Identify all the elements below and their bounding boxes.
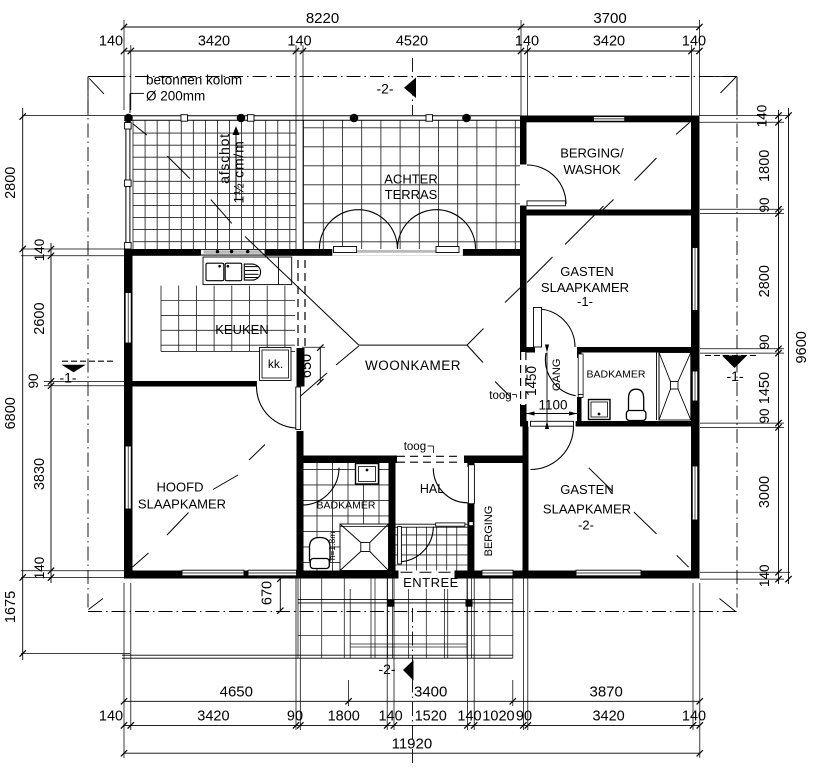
svg-text:WASHOK: WASHOK bbox=[563, 162, 621, 177]
svg-text:1675: 1675 bbox=[3, 591, 19, 623]
svg-text:BERGING: BERGING bbox=[483, 506, 495, 557]
svg-text:11920: 11920 bbox=[392, 735, 433, 752]
svg-text:ACHTER: ACHTER bbox=[384, 172, 437, 187]
svg-text:140: 140 bbox=[32, 239, 47, 262]
svg-text:1520: 1520 bbox=[415, 709, 447, 725]
svg-text:-2-: -2- bbox=[578, 518, 594, 533]
svg-text:140: 140 bbox=[457, 709, 481, 725]
svg-text:90: 90 bbox=[287, 709, 303, 725]
svg-text:140: 140 bbox=[682, 709, 706, 725]
svg-text:betonnen kolom: betonnen kolom bbox=[146, 73, 242, 88]
svg-text:BADKAMER: BADKAMER bbox=[587, 369, 646, 381]
svg-text:-1-: -1- bbox=[577, 294, 593, 309]
svg-text:90: 90 bbox=[757, 408, 772, 423]
svg-text:GANG: GANG bbox=[551, 359, 563, 391]
svg-text:670: 670 bbox=[260, 581, 276, 605]
svg-text:-1-: -1- bbox=[59, 370, 76, 386]
svg-text:3870: 3870 bbox=[590, 684, 623, 701]
svg-text:140: 140 bbox=[287, 34, 311, 50]
svg-text:toog: toog bbox=[404, 441, 426, 453]
svg-text:SLAAPKAMER: SLAAPKAMER bbox=[138, 497, 226, 512]
svg-text:4650: 4650 bbox=[220, 684, 253, 701]
svg-text:140: 140 bbox=[378, 709, 402, 725]
svg-text:1450: 1450 bbox=[757, 372, 773, 404]
svg-text:HAL: HAL bbox=[420, 482, 444, 496]
svg-text:kk.: kk. bbox=[268, 357, 283, 371]
svg-text:6800: 6800 bbox=[3, 397, 19, 429]
svg-text:140: 140 bbox=[755, 105, 770, 128]
svg-text:GASTEN: GASTEN bbox=[560, 482, 613, 497]
svg-text:3830: 3830 bbox=[32, 458, 48, 490]
svg-text:1800: 1800 bbox=[757, 150, 773, 182]
svg-text:3420: 3420 bbox=[593, 34, 625, 50]
svg-text:HOOFD: HOOFD bbox=[157, 480, 204, 495]
svg-text:90: 90 bbox=[757, 334, 772, 349]
svg-text:BERGING/: BERGING/ bbox=[560, 146, 624, 161]
svg-text:3700: 3700 bbox=[593, 10, 626, 27]
svg-text:1100: 1100 bbox=[538, 398, 567, 413]
svg-text:SLAAPKAMER: SLAAPKAMER bbox=[541, 280, 629, 295]
svg-text:140: 140 bbox=[682, 34, 706, 50]
svg-text:KEUKEN: KEUKEN bbox=[215, 322, 268, 337]
svg-text:1450: 1450 bbox=[524, 366, 539, 396]
svg-text:SLAAPKAMER: SLAAPKAMER bbox=[543, 502, 631, 517]
svg-text:9600: 9600 bbox=[794, 331, 810, 363]
svg-text:Ø 200mm: Ø 200mm bbox=[146, 89, 205, 104]
svg-text:GASTEN: GASTEN bbox=[560, 264, 613, 279]
svg-text:1020: 1020 bbox=[482, 709, 514, 725]
svg-text:140: 140 bbox=[515, 34, 539, 50]
svg-text:140: 140 bbox=[757, 564, 772, 587]
svg-text:1800: 1800 bbox=[328, 709, 360, 725]
svg-text:toog: toog bbox=[489, 390, 511, 402]
svg-text:140: 140 bbox=[99, 709, 123, 725]
svg-text:h=1.8m: h=1.8m bbox=[327, 532, 337, 561]
svg-text:140: 140 bbox=[99, 34, 123, 50]
svg-text:ENTREE: ENTREE bbox=[403, 575, 459, 590]
svg-text:-2-: -2- bbox=[376, 81, 393, 97]
svg-text:WOONKAMER: WOONKAMER bbox=[365, 358, 461, 373]
svg-text:90: 90 bbox=[516, 709, 532, 725]
svg-text:BADKAMER: BADKAMER bbox=[317, 500, 376, 512]
svg-text:650: 650 bbox=[299, 354, 315, 378]
svg-text:3000: 3000 bbox=[757, 476, 773, 508]
svg-text:8220: 8220 bbox=[306, 10, 339, 27]
svg-text:TERRAS: TERRAS bbox=[385, 187, 438, 202]
svg-text:2600: 2600 bbox=[32, 302, 48, 334]
svg-text:1½ cm/m: 1½ cm/m bbox=[231, 140, 247, 203]
svg-text:2800: 2800 bbox=[3, 167, 19, 199]
svg-text:140: 140 bbox=[32, 557, 47, 580]
svg-text:3420: 3420 bbox=[197, 709, 229, 725]
svg-text:4520: 4520 bbox=[396, 34, 428, 50]
svg-text:2800: 2800 bbox=[757, 265, 773, 297]
svg-text:90: 90 bbox=[26, 373, 41, 388]
svg-text:90: 90 bbox=[757, 197, 772, 212]
svg-text:3400: 3400 bbox=[414, 684, 447, 701]
svg-text:3420: 3420 bbox=[198, 34, 230, 50]
svg-text:-1-: -1- bbox=[726, 368, 743, 384]
svg-text:3420: 3420 bbox=[592, 709, 624, 725]
